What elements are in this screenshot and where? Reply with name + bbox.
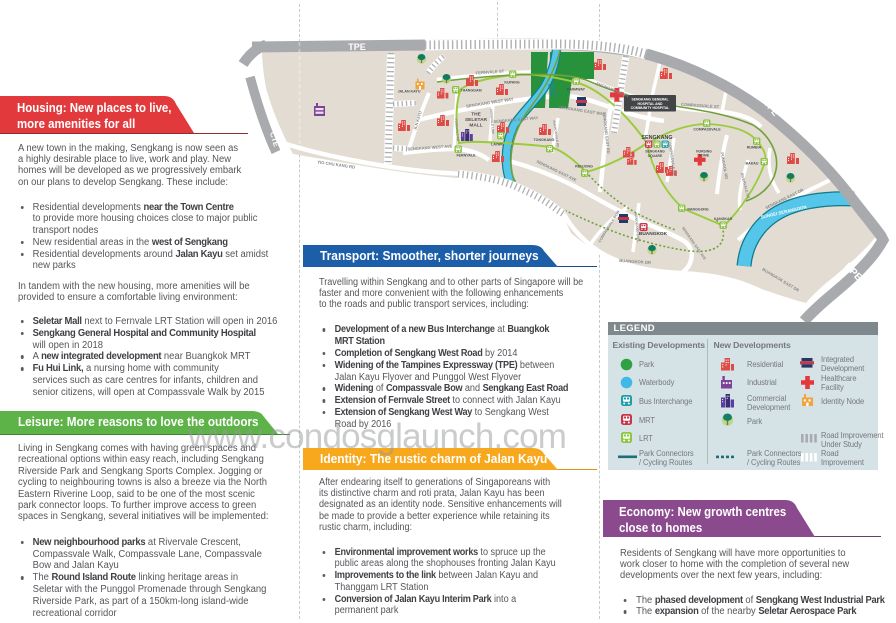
svg-text:RANGGUNG: RANGGUNG — [687, 208, 709, 212]
svg-text:KUPANG: KUPANG — [504, 81, 520, 85]
svg-text:RENJONG: RENJONG — [575, 165, 593, 169]
svg-text:COMPASSVALE: COMPASSVALE — [693, 128, 721, 132]
svg-text:LAYAR: LAYAR — [491, 143, 503, 147]
svg-text:THE: THE — [471, 112, 481, 118]
svg-text:TPE: TPE — [348, 42, 366, 52]
svg-text:JALAN KAYU: JALAN KAYU — [398, 90, 421, 94]
svg-text:SENGKANG GENERAL: SENGKANG GENERAL — [631, 97, 668, 101]
svg-text:RUMBIA: RUMBIA — [747, 146, 762, 150]
svg-text:BUANGKOK: BUANGKOK — [639, 231, 668, 237]
svg-text:COMMUNITY HOSPITAL: COMMUNITY HOSPITAL — [631, 106, 670, 110]
svg-text:BAKAU: BAKAU — [746, 162, 759, 166]
svg-text:SENGKANG: SENGKANG — [645, 150, 665, 154]
svg-text:SELETAR: SELETAR — [465, 117, 488, 123]
svg-text:MALL: MALL — [469, 123, 482, 129]
svg-text:TONGKANG: TONGKANG — [534, 138, 555, 142]
svg-text:KANGKAR: KANGKAR — [714, 217, 733, 221]
svg-text:FARMWAY: FARMWAY — [567, 88, 586, 92]
svg-text:THANGGAM: THANGGAM — [460, 89, 481, 93]
svg-text:HOME: HOME — [699, 154, 710, 158]
svg-text:FERNVALE: FERNVALE — [456, 154, 476, 158]
svg-text:HOSPITAL AND: HOSPITAL AND — [638, 102, 664, 106]
svg-text:SQUARE: SQUARE — [648, 154, 663, 158]
svg-text:SENGKANG: SENGKANG — [641, 135, 672, 141]
